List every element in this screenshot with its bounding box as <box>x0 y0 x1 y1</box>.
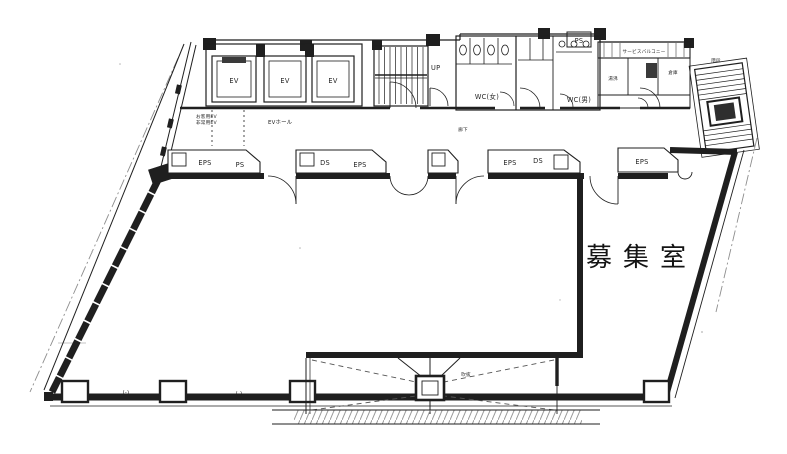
service-balcony-label: サービスバルコニー <box>622 48 665 55</box>
floor-plan-drawing: (-) (-) EV EV EV UP <box>0 0 787 454</box>
ev-note-line1: お客用EV <box>196 113 217 120</box>
vacancy-room-label: 募集室 <box>586 243 697 273</box>
corridor-label: 廊下 <box>458 126 468 133</box>
wc-women-label: WC(女) <box>475 92 499 101</box>
stair-up-label: UP <box>431 64 440 72</box>
ev-hall-label: EVホール <box>268 119 293 126</box>
external-stair-label: 階段 <box>711 57 721 64</box>
ev2-label: EV <box>280 77 289 85</box>
shaft-b-eps-label: EPS <box>353 161 366 169</box>
wc-men-label: WC(男) <box>567 96 591 104</box>
dim-label-2: (-) <box>236 391 243 397</box>
ev3-label: EV <box>328 77 337 85</box>
dim-label-1: (-) <box>123 390 130 396</box>
ev-note-line2: 非常用EV <box>196 119 217 126</box>
utility2-label: 倉庫 <box>668 69 678 76</box>
shaft-d-eps-label: EPS <box>503 159 516 167</box>
shaft-d-ds-label: DS <box>533 157 543 165</box>
shaft-b-ds-label: DS <box>320 159 330 167</box>
floor-plan-page: (-) (-) EV EV EV UP <box>0 0 787 454</box>
ps-top-label: PS <box>575 37 584 45</box>
shaft-a-eps-label: EPS <box>198 159 211 167</box>
shaft-e-eps-label: EPS <box>635 158 648 166</box>
canopy-void-label: 吹抜 <box>461 371 471 378</box>
ev1-label: EV <box>229 77 238 85</box>
utility1-label: 湯沸 <box>608 75 618 82</box>
shaft-a-ps-label: PS <box>236 161 245 169</box>
